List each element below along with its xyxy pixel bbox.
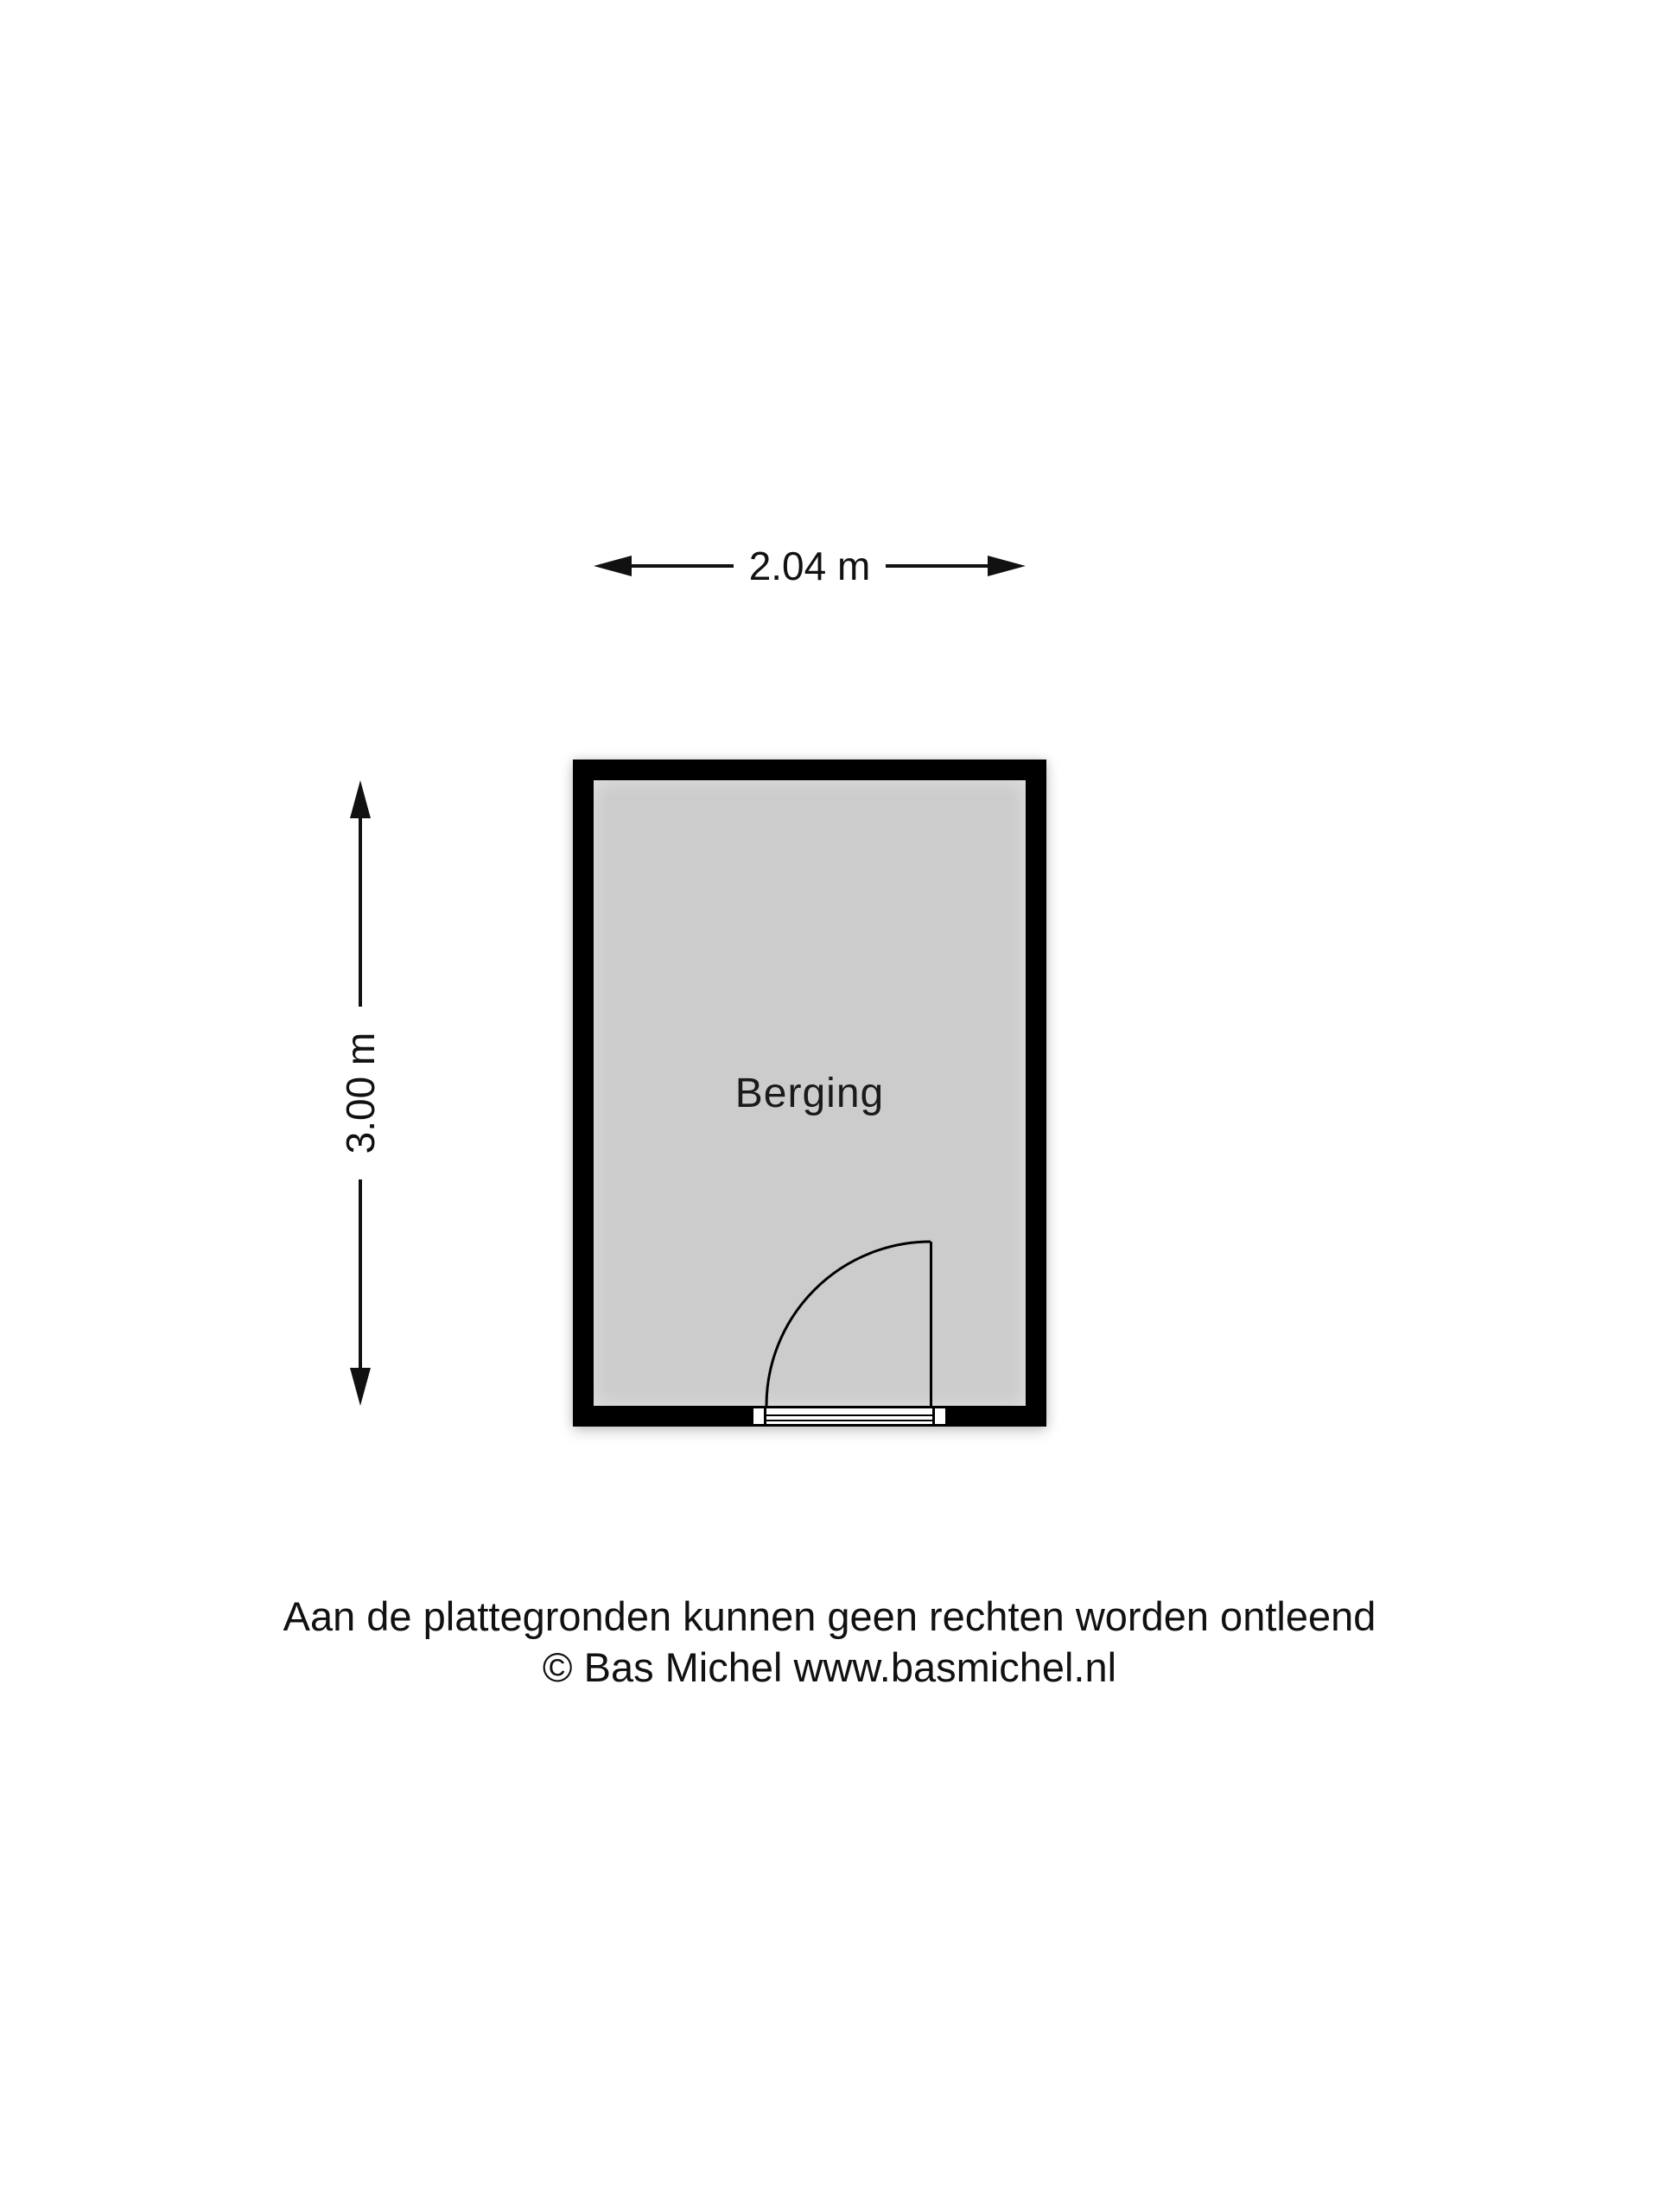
dimension-height-label-wrap: 3.00 m xyxy=(340,1007,380,1179)
arrow-left-icon xyxy=(594,556,632,576)
door-jamb-left xyxy=(751,1406,766,1427)
floorplan-page: 2.04 m 3.00 m Berging Aan de plattegrond… xyxy=(0,0,1659,2212)
dimension-height-label: 3.00 m xyxy=(337,1033,384,1154)
dimension-line-top xyxy=(359,818,362,1007)
arrow-up-icon xyxy=(350,780,371,818)
arrow-down-icon xyxy=(350,1368,371,1406)
dimension-line-bottom xyxy=(359,1179,362,1368)
disclaimer-line2: © Bas Michel www.basmichel.nl xyxy=(0,1642,1659,1693)
door-jamb-right xyxy=(932,1406,948,1427)
disclaimer-line1: Aan de plattegronden kunnen geen rechten… xyxy=(0,1591,1659,1642)
door-swing-arc-icon xyxy=(765,1240,932,1408)
arrow-right-icon xyxy=(988,556,1026,576)
dimension-height: 3.00 m xyxy=(340,780,380,1406)
dimension-width: 2.04 m xyxy=(594,545,1026,587)
dimension-line-left xyxy=(632,564,734,568)
footer-disclaimer: Aan de plattegronden kunnen geen rechten… xyxy=(0,1591,1659,1693)
dimension-width-label: 2.04 m xyxy=(734,545,887,587)
room-label: Berging xyxy=(594,1073,1026,1115)
dimension-line-right xyxy=(886,564,988,568)
door-threshold xyxy=(765,1406,934,1427)
